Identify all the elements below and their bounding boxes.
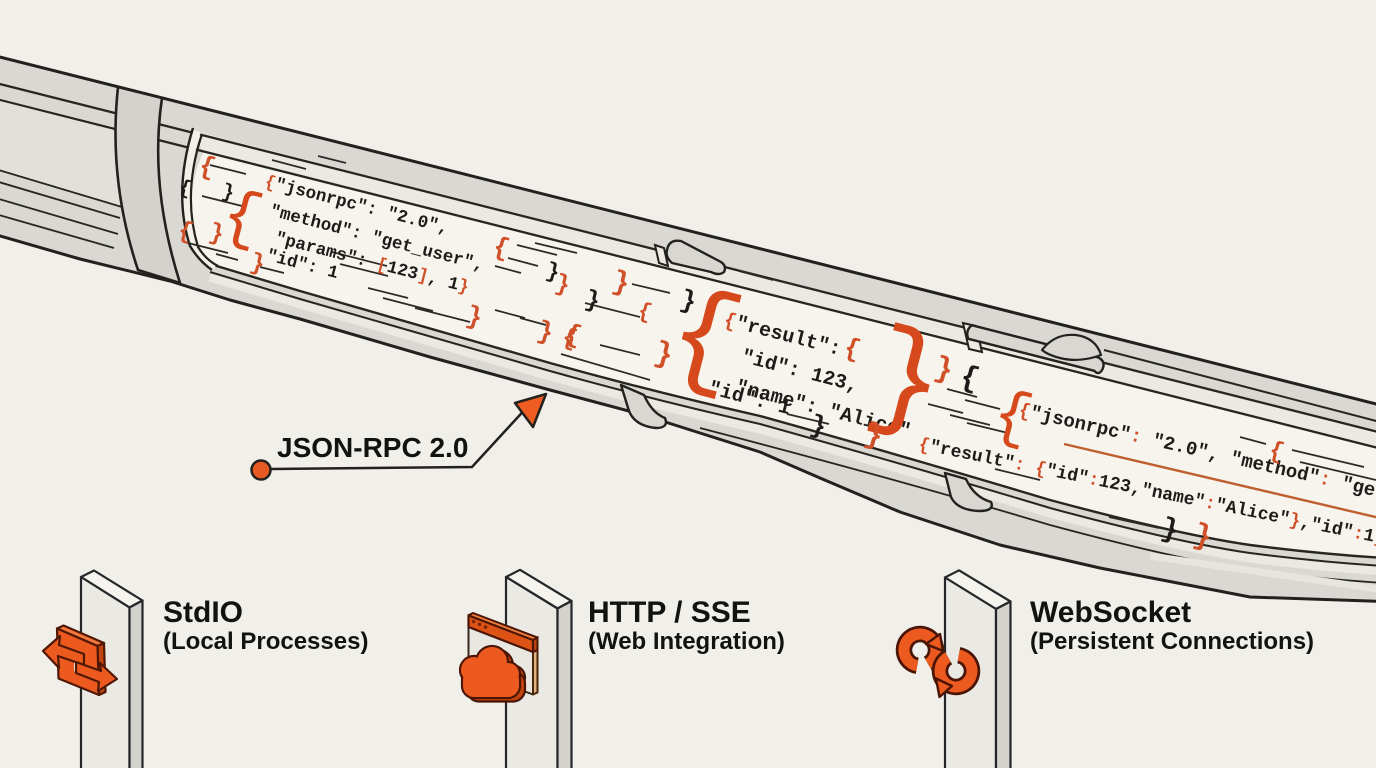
- svg-text:StdIO: StdIO: [163, 596, 243, 629]
- svg-text:HTTP / SSE: HTTP / SSE: [588, 596, 751, 629]
- svg-text:(Local Processes): (Local Processes): [163, 628, 368, 655]
- svg-text:(Web Integration): (Web Integration): [588, 628, 785, 655]
- svg-text:WebSocket: WebSocket: [1030, 596, 1191, 629]
- svg-text:JSON-RPC 2.0: JSON-RPC 2.0: [277, 432, 468, 463]
- svg-text:(Persistent Connections): (Persistent Connections): [1030, 628, 1314, 655]
